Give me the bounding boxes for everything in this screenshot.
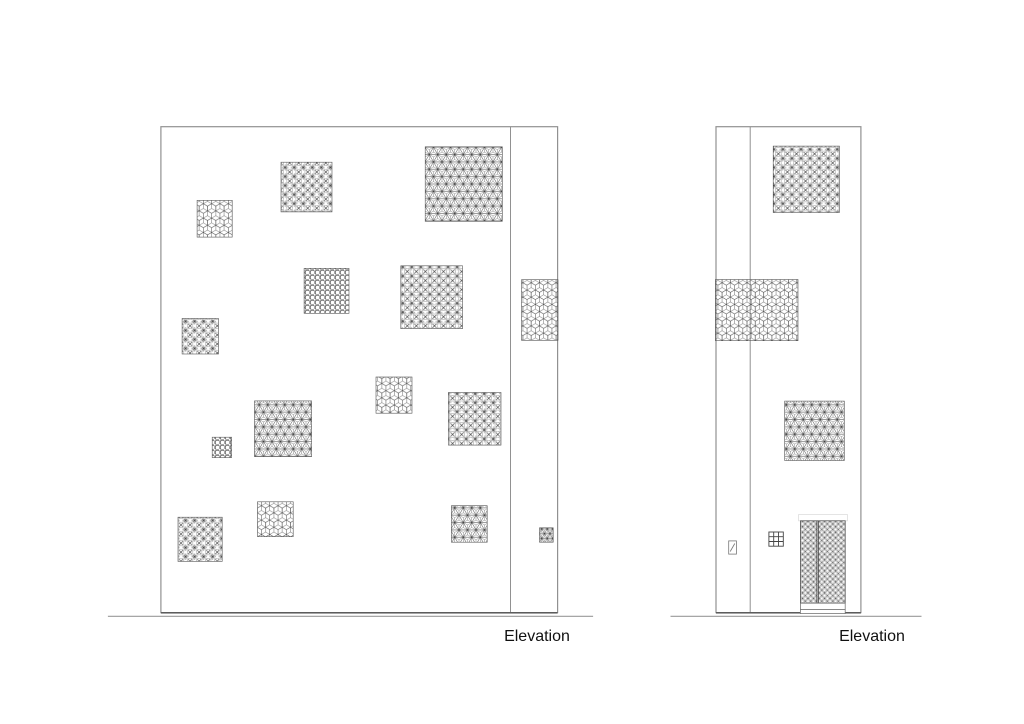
svg-text:Elevation: Elevation xyxy=(504,628,570,645)
svg-text:Elevation: Elevation xyxy=(839,628,905,645)
